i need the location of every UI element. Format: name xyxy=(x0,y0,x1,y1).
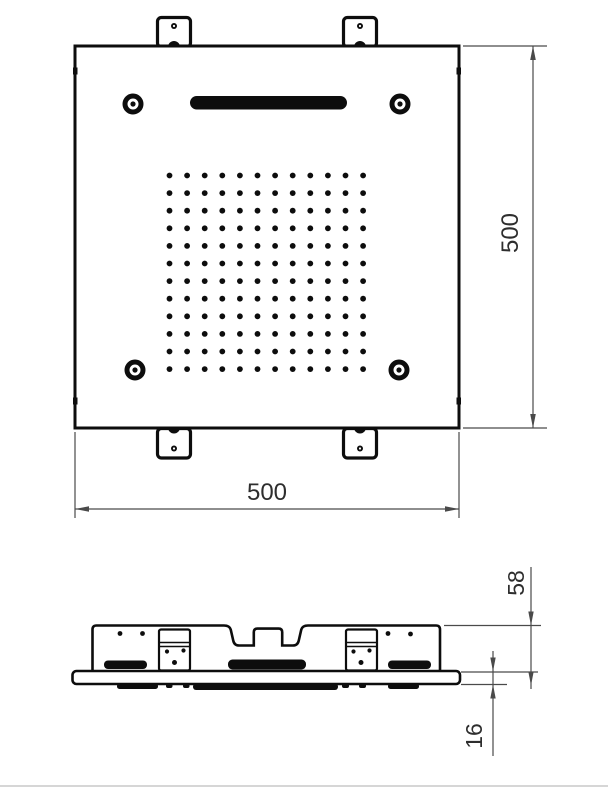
nozzle-dot xyxy=(167,278,173,284)
arrow-down-icon xyxy=(528,672,533,686)
nozzle-dot xyxy=(184,225,190,231)
nozzle-dot xyxy=(343,331,349,337)
arrow-up-icon xyxy=(530,46,536,60)
nozzle-dot xyxy=(290,208,296,214)
nozzle-dot xyxy=(325,261,331,267)
nozzle-dot xyxy=(237,225,243,231)
nozzle-dot xyxy=(202,173,208,179)
nozzle-dot xyxy=(184,331,190,337)
nozzle-dot xyxy=(167,173,173,179)
dim-width-label: 500 xyxy=(247,479,287,506)
nozzle-dot xyxy=(360,296,366,302)
nozzle-dot xyxy=(237,313,243,319)
nozzle-dot xyxy=(343,349,349,355)
nozzle-dot xyxy=(167,349,173,355)
nozzle-dot xyxy=(360,225,366,231)
nozzle-dot xyxy=(237,349,243,355)
nozzle-dot xyxy=(219,243,225,249)
nozzle-dot xyxy=(325,208,331,214)
nozzle-dot xyxy=(307,225,313,231)
nozzle-dot xyxy=(272,331,278,337)
nozzle-dot xyxy=(360,349,366,355)
nozzle-dot xyxy=(202,208,208,214)
nozzle-dot xyxy=(184,296,190,302)
nozzle-dot xyxy=(290,173,296,179)
nozzle-dot xyxy=(325,190,331,196)
arrow-left-icon xyxy=(75,506,89,512)
nozzle-dot xyxy=(290,261,296,267)
nozzle-dot xyxy=(343,366,349,372)
nozzle-dot xyxy=(272,261,278,267)
dim-height-label: 500 xyxy=(497,213,524,253)
nozzle-dot xyxy=(272,349,278,355)
nozzle-dot xyxy=(184,243,190,249)
nozzle-dot xyxy=(255,313,261,319)
nozzle-dot xyxy=(219,278,225,284)
nozzle-dot xyxy=(255,225,261,231)
nozzle-dot xyxy=(255,243,261,249)
nozzle-dot xyxy=(202,278,208,284)
nozzle-dot xyxy=(167,261,173,267)
nozzle-dot xyxy=(202,296,208,302)
mounting-bracket-top xyxy=(158,18,191,48)
nozzle-dot xyxy=(290,278,296,284)
nozzle-dot xyxy=(184,190,190,196)
nozzle-dot xyxy=(219,173,225,179)
mounting-bracket-bottom xyxy=(158,428,191,459)
nozzle-dot xyxy=(184,349,190,355)
nozzle-dot xyxy=(290,243,296,249)
nozzle-dot xyxy=(307,208,313,214)
nozzle-dot xyxy=(343,225,349,231)
nozzle-dot xyxy=(325,296,331,302)
nozzle-dot xyxy=(219,261,225,267)
nozzle-dot xyxy=(237,296,243,302)
nozzle-dot xyxy=(290,349,296,355)
nozzle-dot xyxy=(237,190,243,196)
nozzle-dot xyxy=(202,243,208,249)
nozzle-dot xyxy=(202,349,208,355)
nozzle-dot xyxy=(307,331,313,337)
nozzle-dot xyxy=(290,190,296,196)
nozzle-dot xyxy=(184,261,190,267)
nozzle-dot xyxy=(343,261,349,267)
nozzle-dot xyxy=(272,278,278,284)
nozzle-dot xyxy=(360,208,366,214)
nozzle-dot xyxy=(325,366,331,372)
nozzle-dot xyxy=(325,225,331,231)
nozzle-dot xyxy=(272,296,278,302)
nozzle-dot xyxy=(325,349,331,355)
nozzle-dot xyxy=(255,349,261,355)
nozzle-dot xyxy=(360,261,366,267)
gasket-bar xyxy=(104,661,147,670)
dimension-width-bottom: 500 xyxy=(75,432,459,518)
nozzle-dot xyxy=(360,313,366,319)
edge-clip xyxy=(73,398,78,405)
nozzle-dot xyxy=(307,261,313,267)
gasket-bar xyxy=(228,660,306,670)
waterfall-slot xyxy=(190,96,347,110)
nozzle-dot xyxy=(307,173,313,179)
screw-head xyxy=(118,631,123,636)
arrow-down-icon xyxy=(528,612,533,626)
nozzle-dot xyxy=(167,208,173,214)
gasket-bar xyxy=(388,661,431,670)
technical-drawing: 500 500 xyxy=(0,0,608,800)
nozzle-dot xyxy=(237,261,243,267)
mounting-bracket-bottom xyxy=(344,428,377,459)
nozzle-dot xyxy=(255,296,261,302)
nozzle-dot xyxy=(307,366,313,372)
nozzle-dot xyxy=(255,261,261,267)
nozzle-dot xyxy=(325,173,331,179)
screw-hole xyxy=(392,96,408,112)
face-plate xyxy=(73,671,461,684)
screw-hole xyxy=(391,362,407,378)
nozzle-dot xyxy=(219,296,225,302)
dimension-plate: 16 xyxy=(461,651,507,756)
nozzle-dot xyxy=(184,278,190,284)
nozzle-dot xyxy=(237,331,243,337)
nozzle-dot xyxy=(255,208,261,214)
nozzle-dot xyxy=(184,208,190,214)
nozzle-dot xyxy=(184,366,190,372)
nozzle-dot xyxy=(272,313,278,319)
nozzle-dot xyxy=(325,278,331,284)
edge-clip xyxy=(73,68,78,75)
nozzle-dot xyxy=(237,208,243,214)
nozzle-dot xyxy=(167,296,173,302)
nozzle-dot xyxy=(343,296,349,302)
nozzle-dot xyxy=(290,225,296,231)
nozzle-dot xyxy=(237,366,243,372)
nozzle-dot xyxy=(307,296,313,302)
nozzle-dot xyxy=(360,243,366,249)
nozzle-dot xyxy=(202,190,208,196)
nozzle-dot xyxy=(307,243,313,249)
nozzle-dot xyxy=(325,331,331,337)
arrow-down-icon xyxy=(490,658,495,672)
nozzle-dot xyxy=(343,190,349,196)
nozzle-dot xyxy=(219,366,225,372)
nozzle-dot xyxy=(255,331,261,337)
nozzle-dot xyxy=(325,313,331,319)
nozzle-dot xyxy=(255,190,261,196)
nozzle-dot xyxy=(237,173,243,179)
mounting-rail-right xyxy=(346,630,377,671)
nozzle-dot xyxy=(184,173,190,179)
nozzle-dot xyxy=(219,225,225,231)
nozzle-dot xyxy=(255,278,261,284)
nozzle-dot xyxy=(360,278,366,284)
nozzle-dot xyxy=(290,313,296,319)
dimension-height-right: 500 xyxy=(463,46,547,428)
arrow-up-icon xyxy=(490,685,495,699)
nozzle-dot xyxy=(343,208,349,214)
nozzle-dot xyxy=(272,225,278,231)
nozzle-dot xyxy=(343,173,349,179)
dim-depth-label: 58 xyxy=(503,570,529,596)
nozzle-dot xyxy=(219,349,225,355)
dim-plate-label: 16 xyxy=(461,723,487,749)
nozzle-dot xyxy=(219,190,225,196)
nozzle-dot xyxy=(272,173,278,179)
nozzle-dot xyxy=(167,331,173,337)
screw-hole xyxy=(125,96,141,112)
mounting-bracket-top xyxy=(344,18,377,48)
nozzle-dot xyxy=(343,313,349,319)
nozzle-dot xyxy=(167,313,173,319)
nozzle-dot xyxy=(202,366,208,372)
nozzle-dot xyxy=(237,243,243,249)
nozzle-dot xyxy=(237,278,243,284)
nozzle-dot xyxy=(343,243,349,249)
nozzle-dot xyxy=(272,190,278,196)
nozzle-dot xyxy=(360,366,366,372)
nozzle-dot xyxy=(307,313,313,319)
nozzle-dot xyxy=(167,190,173,196)
nozzle-dot xyxy=(325,243,331,249)
nozzle-dot xyxy=(360,190,366,196)
arrow-right-icon xyxy=(445,506,459,512)
nozzle-dot xyxy=(167,366,173,372)
screw-head xyxy=(140,631,145,636)
nozzle-dot xyxy=(202,313,208,319)
screw-hole xyxy=(127,362,143,378)
nozzle-dot xyxy=(290,296,296,302)
nozzle-dot xyxy=(343,278,349,284)
side-view xyxy=(73,626,461,691)
nozzle-dot xyxy=(360,173,366,179)
edge-clip xyxy=(457,68,462,75)
nozzle-dot xyxy=(255,173,261,179)
nozzle-dot xyxy=(307,349,313,355)
nozzle-dot xyxy=(272,366,278,372)
nozzle-dot xyxy=(307,278,313,284)
nozzle-dot xyxy=(307,190,313,196)
nozzle-dot xyxy=(202,225,208,231)
nozzle-dot xyxy=(219,208,225,214)
nozzle-dot xyxy=(290,331,296,337)
screw-head xyxy=(386,631,391,636)
nozzle-dot xyxy=(360,331,366,337)
nozzle-dot xyxy=(167,225,173,231)
nozzle-dot xyxy=(290,366,296,372)
screw-head xyxy=(408,632,413,637)
top-view xyxy=(73,18,461,459)
nozzle-dot xyxy=(202,261,208,267)
nozzle-dot xyxy=(202,331,208,337)
nozzle-dot xyxy=(167,243,173,249)
nozzle-dot xyxy=(272,208,278,214)
nozzle-dot xyxy=(219,331,225,337)
nozzle-dot xyxy=(255,366,261,372)
nozzle-dot xyxy=(184,313,190,319)
arrow-down-icon xyxy=(530,414,536,428)
edge-clip xyxy=(457,398,462,405)
mounting-rail-left xyxy=(159,630,190,671)
nozzle-dot xyxy=(219,313,225,319)
nozzle-dot xyxy=(272,243,278,249)
